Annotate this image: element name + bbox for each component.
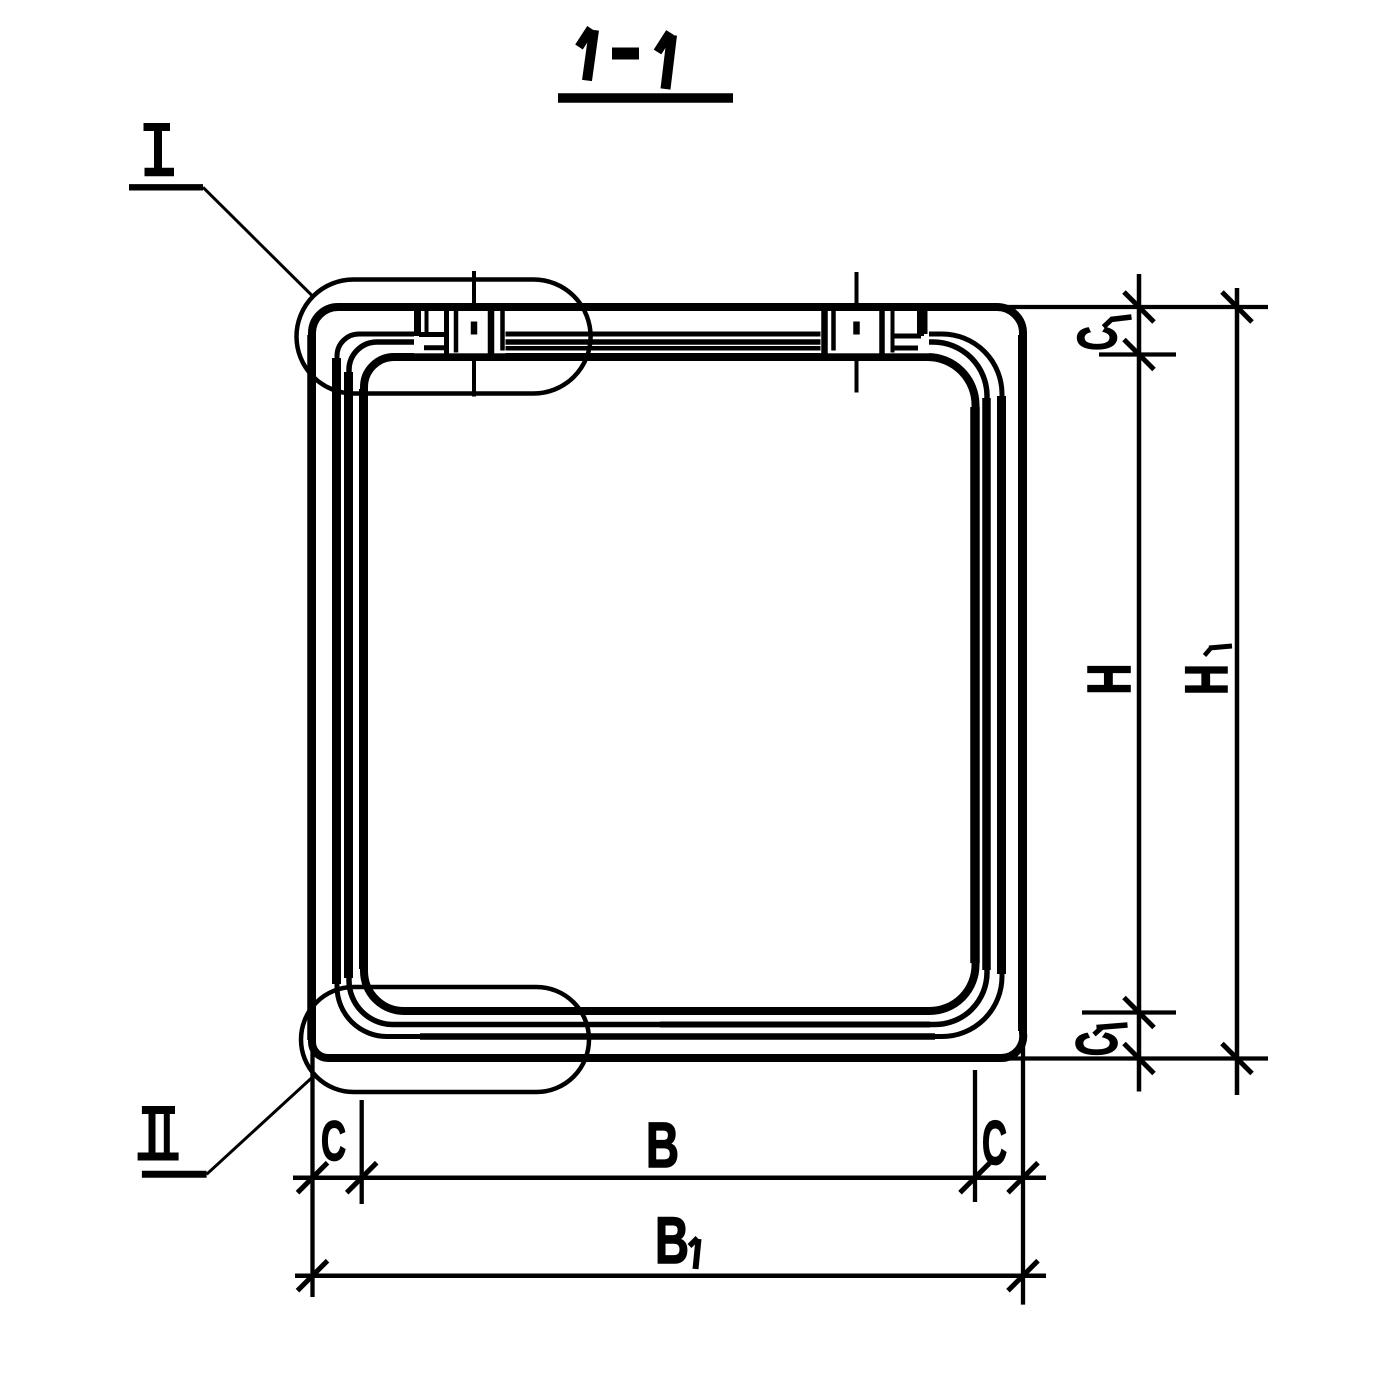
svg-text:H: H (1075, 664, 1143, 695)
svg-text:C: C (1066, 327, 1128, 351)
svg-text:C: C (321, 1109, 346, 1172)
svg-text:B: B (646, 1109, 679, 1181)
svg-text:B: B (655, 1203, 689, 1277)
svg-text:C: C (1065, 1032, 1130, 1056)
svg-text:H: H (1173, 664, 1240, 695)
svg-text:C: C (982, 1109, 1007, 1178)
